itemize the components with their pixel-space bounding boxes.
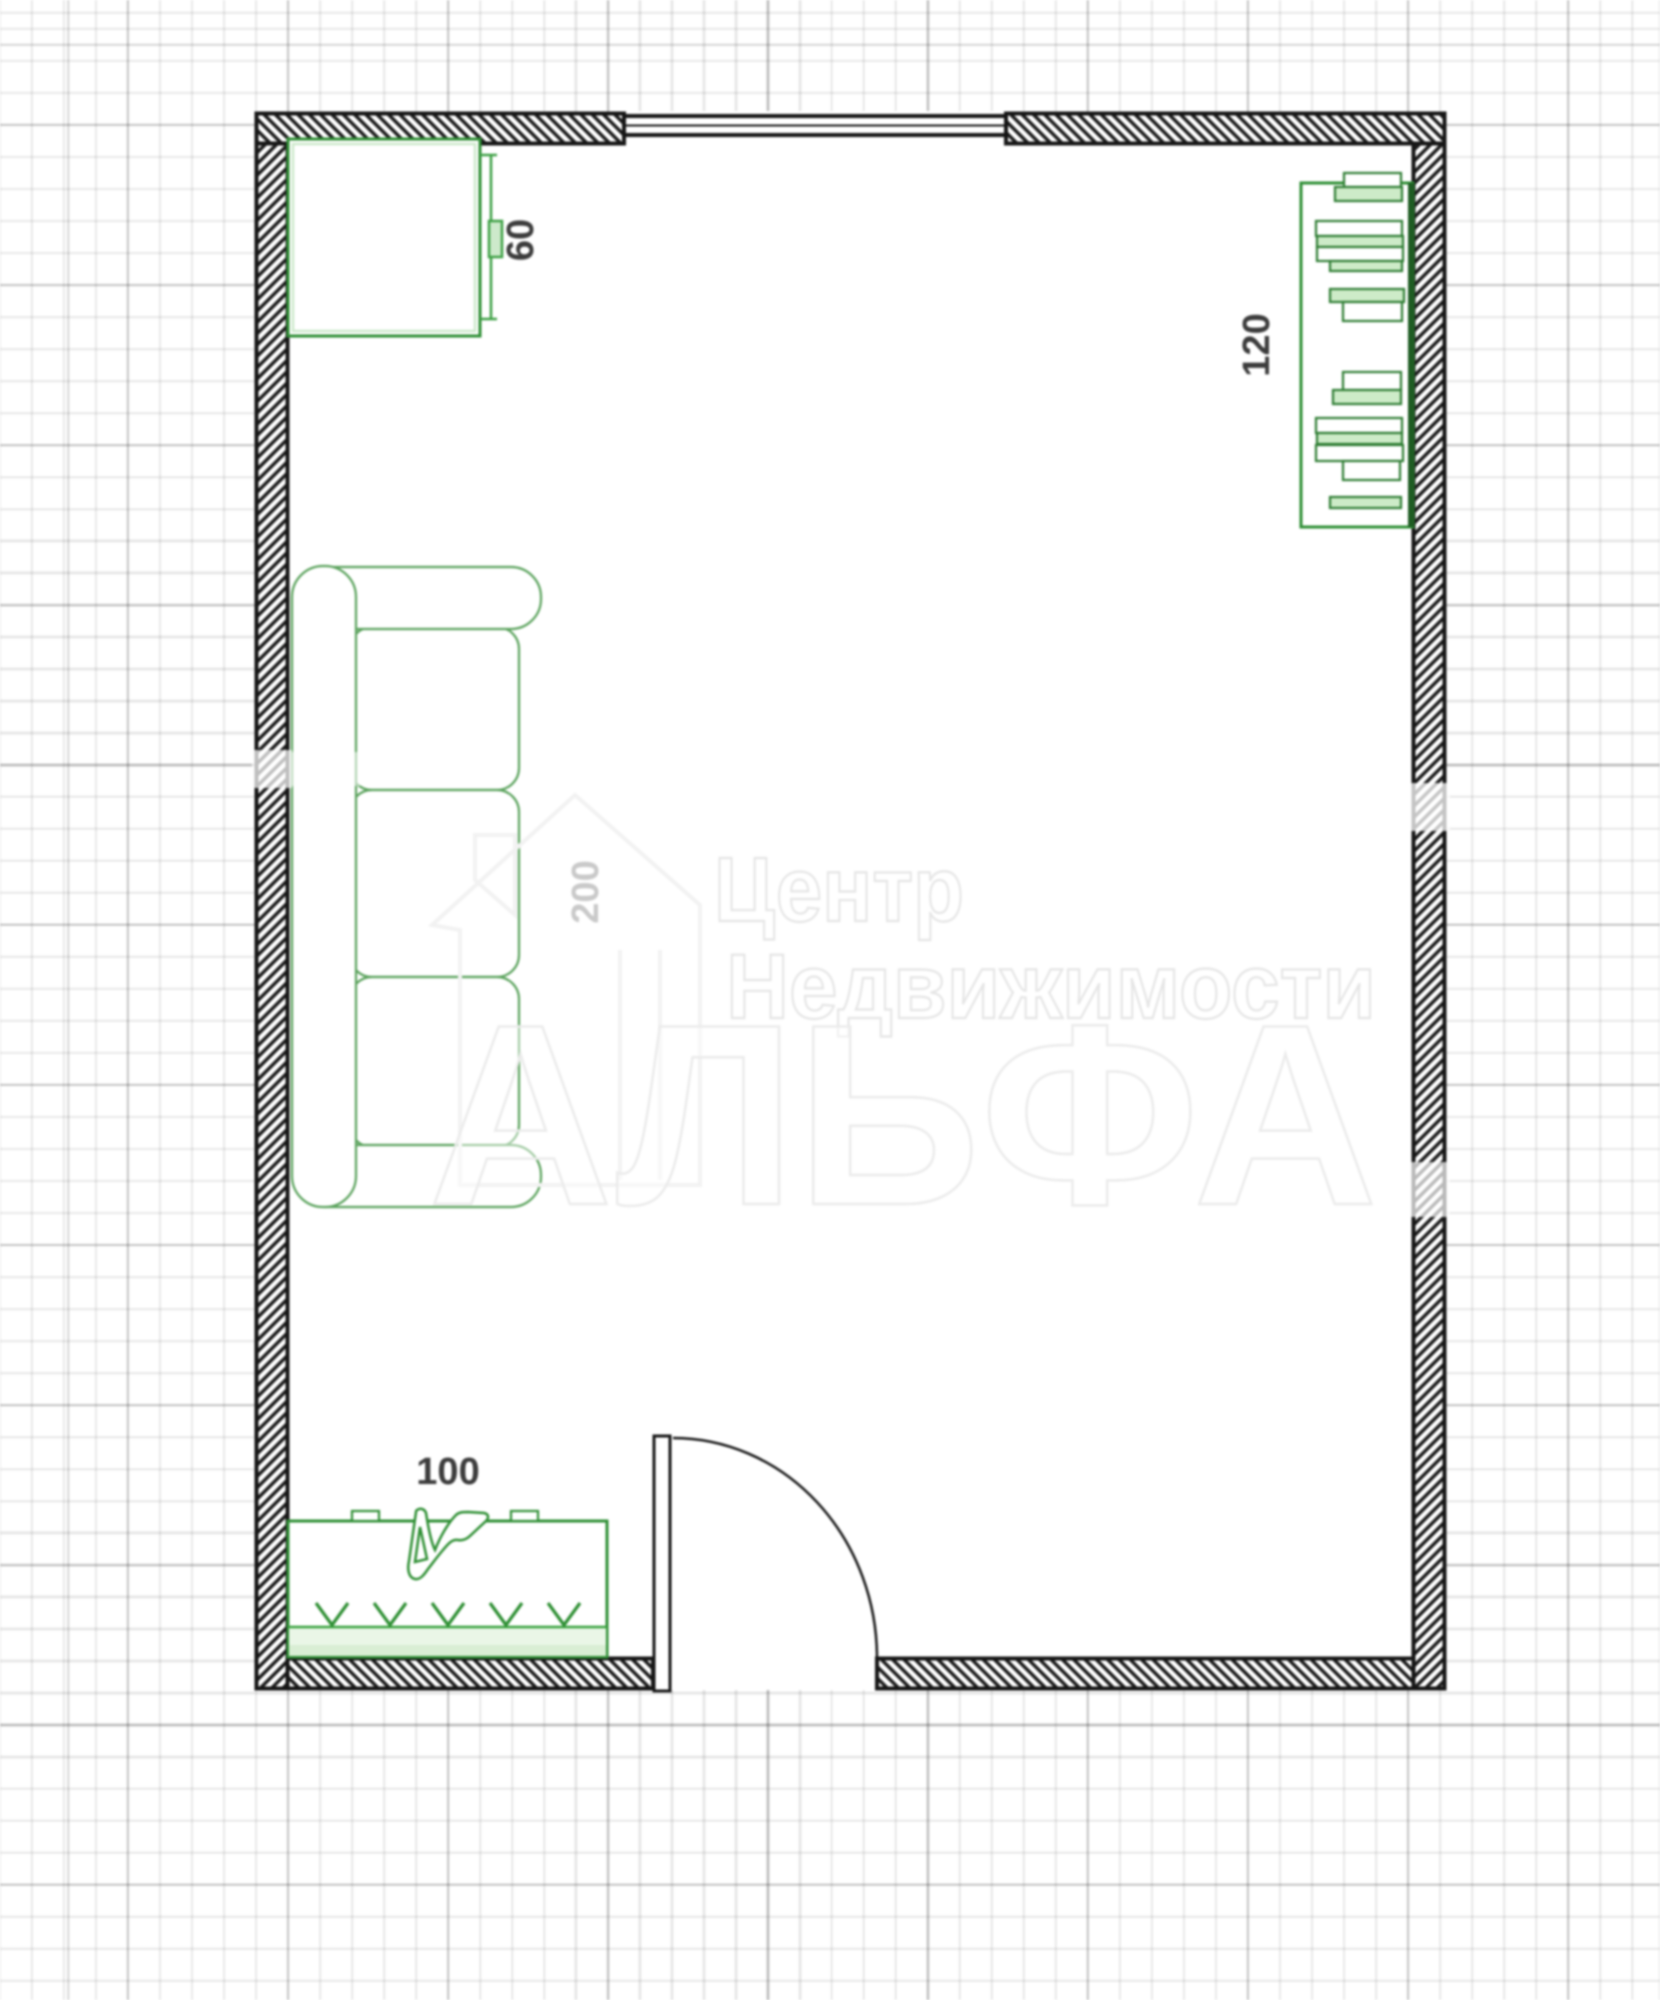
svg-text:АЛЬФА: АЛЬФА [428, 970, 1378, 1259]
svg-text:200: 200 [565, 860, 607, 923]
svg-text:Центр: Центр [714, 839, 964, 941]
svg-text:60: 60 [500, 219, 542, 261]
svg-text:120: 120 [1236, 313, 1278, 376]
svg-text:100: 100 [416, 1451, 479, 1493]
